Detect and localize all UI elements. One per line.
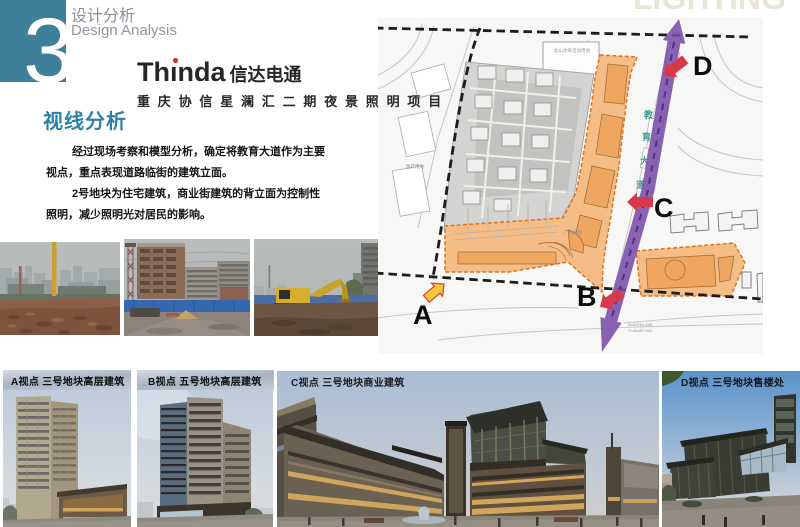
svg-text:Y=46487.962: Y=46487.962 [628, 328, 653, 333]
svg-text:A: A [413, 300, 433, 330]
svg-text:C: C [654, 193, 674, 223]
svg-text:B: B [577, 282, 597, 312]
svg-text:医疗用地: 医疗用地 [406, 163, 424, 170]
svg-text:D: D [693, 51, 713, 81]
svg-text:X=63781.495: X=63781.495 [628, 322, 653, 327]
svg-text:幼山体育活动用地: 幼山体育活动用地 [554, 47, 590, 54]
svg-text:广场规划: 广场规划 [564, 229, 582, 236]
svg-text:教: 教 [643, 109, 654, 120]
svg-text:育: 育 [642, 131, 651, 142]
